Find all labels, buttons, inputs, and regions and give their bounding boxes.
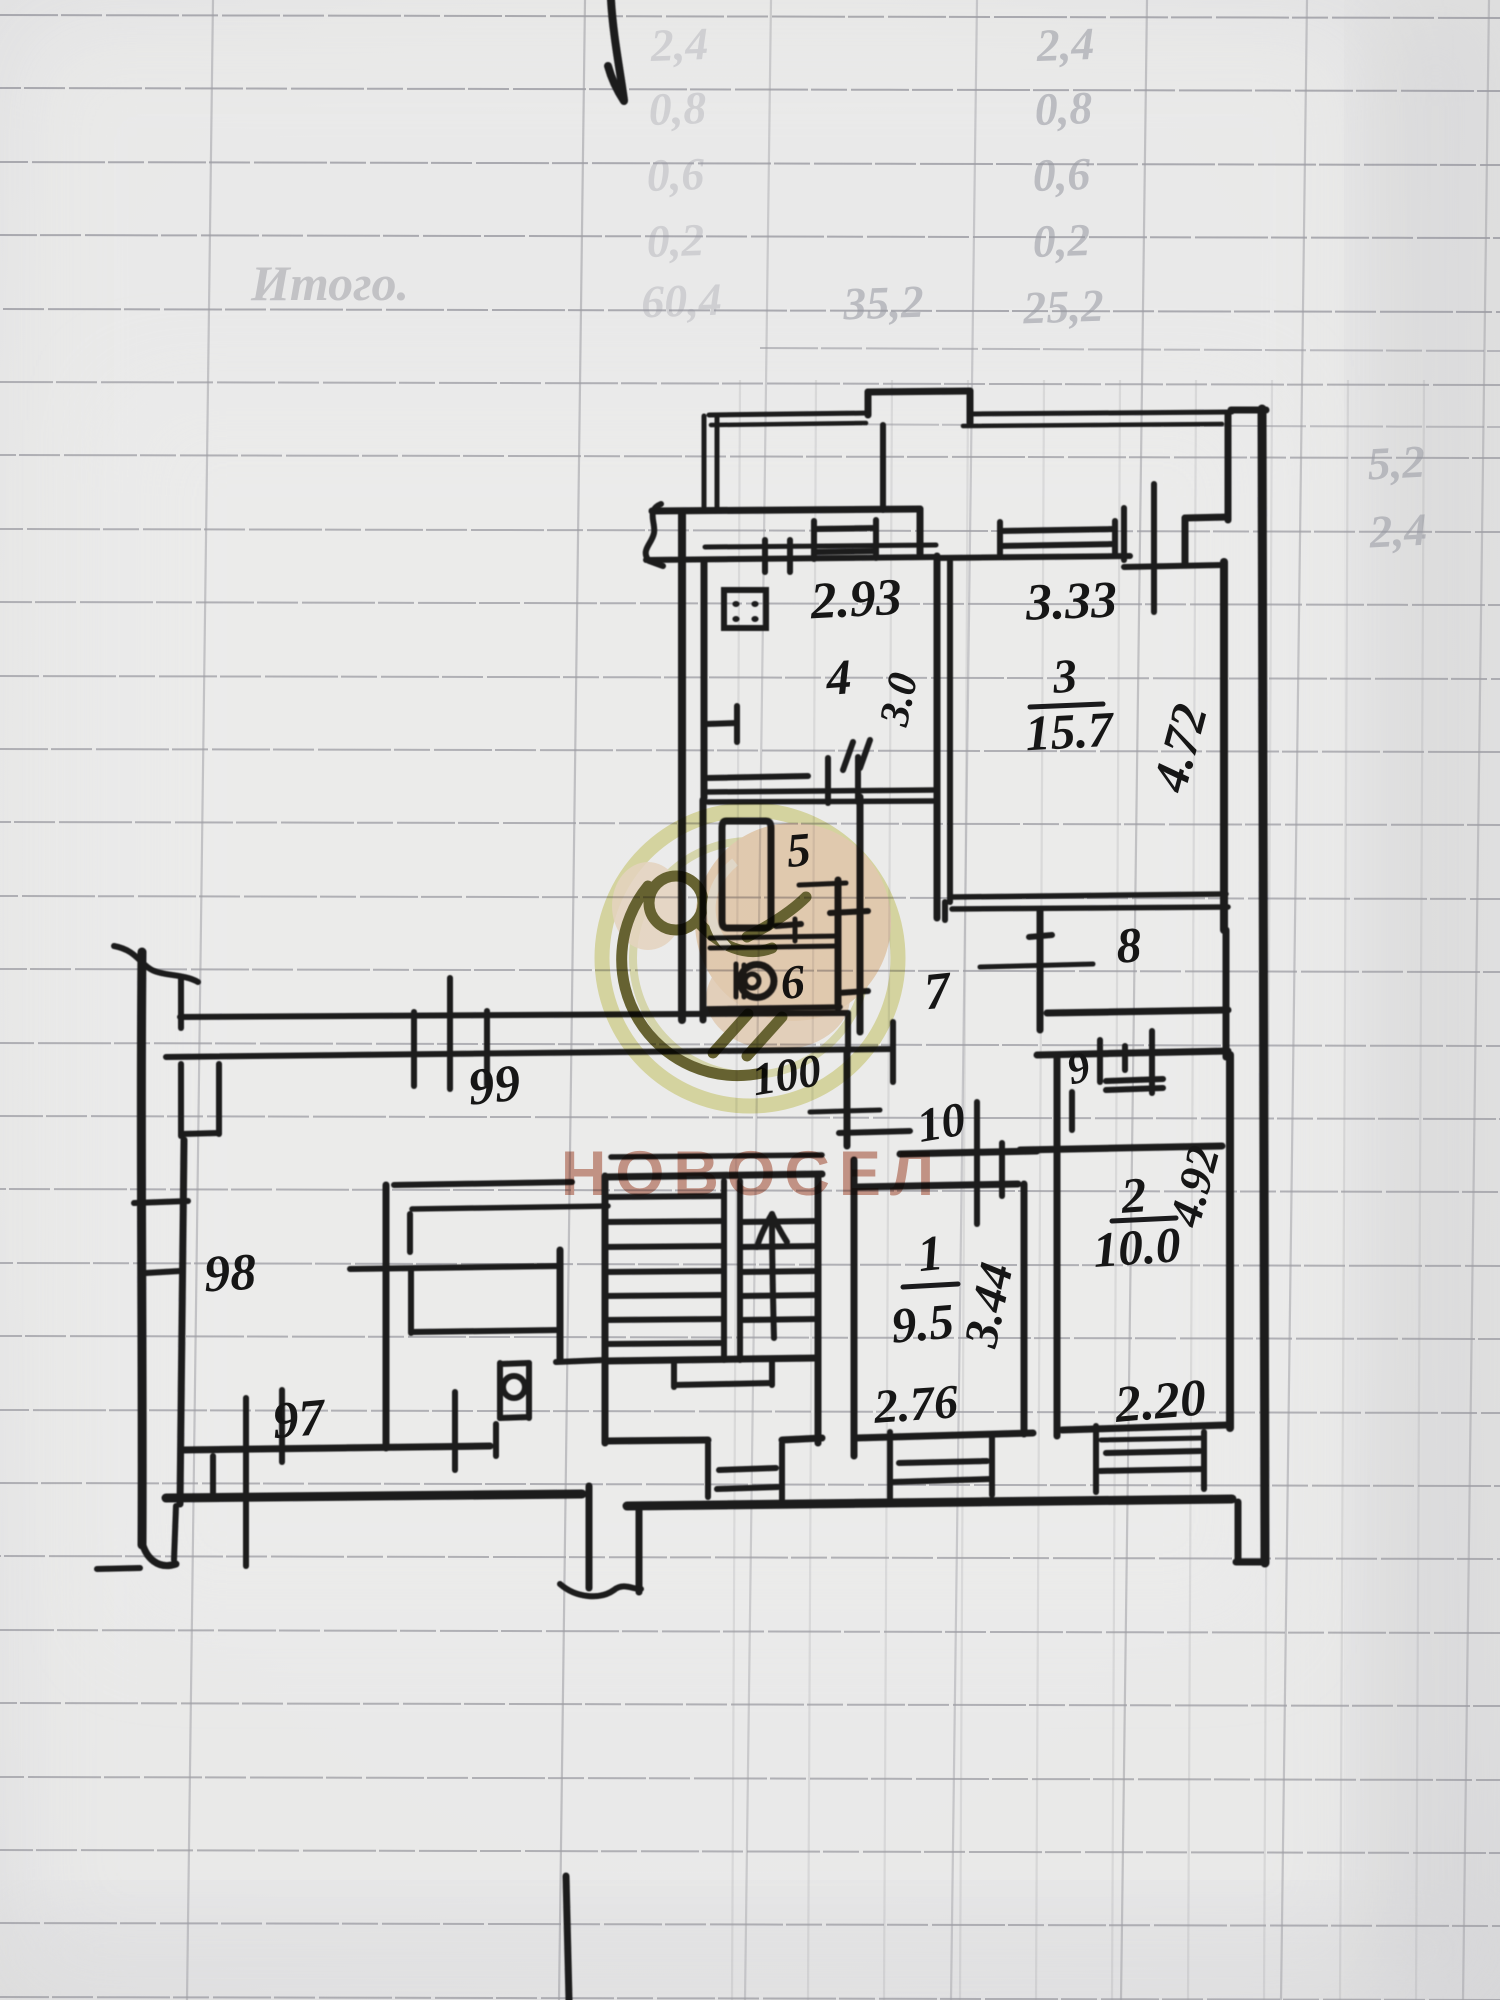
svg-text:0,6: 0,6: [1032, 148, 1091, 201]
svg-text:0,2: 0,2: [1032, 214, 1091, 267]
svg-text:2,4: 2,4: [1367, 504, 1428, 558]
svg-text:2,4: 2,4: [649, 18, 709, 71]
svg-text:3: 3: [1050, 649, 1079, 704]
svg-text:97: 97: [270, 1389, 329, 1450]
svg-text:35,2: 35,2: [841, 276, 924, 330]
svg-text:5,2: 5,2: [1366, 436, 1426, 490]
svg-text:2.20: 2.20: [1112, 1369, 1209, 1434]
svg-text:60,4: 60,4: [640, 274, 722, 328]
svg-text:0,8: 0,8: [648, 82, 707, 135]
svg-text:0,6: 0,6: [646, 148, 705, 201]
svg-text:4: 4: [823, 648, 853, 706]
svg-text:0,2: 0,2: [646, 214, 705, 267]
svg-text:2.93: 2.93: [808, 569, 903, 631]
svg-text:2,4: 2,4: [1035, 18, 1095, 71]
svg-text:НОВОСЕЛ: НОВОСЕЛ: [561, 1139, 943, 1209]
svg-text:99: 99: [465, 1055, 523, 1117]
svg-text:98: 98: [203, 1244, 258, 1304]
svg-text:2.76: 2.76: [871, 1375, 959, 1434]
svg-text:8: 8: [1114, 916, 1143, 974]
svg-text:Итого.: Итого.: [250, 255, 409, 311]
svg-text:9.5: 9.5: [889, 1292, 956, 1353]
svg-text:3.33: 3.33: [1024, 571, 1118, 631]
svg-text:2: 2: [1118, 1166, 1148, 1224]
svg-text:15.7: 15.7: [1024, 701, 1116, 762]
svg-text:0,8: 0,8: [1034, 82, 1093, 135]
svg-text:25,2: 25,2: [1021, 280, 1104, 334]
svg-text:10.0: 10.0: [1091, 1216, 1182, 1278]
